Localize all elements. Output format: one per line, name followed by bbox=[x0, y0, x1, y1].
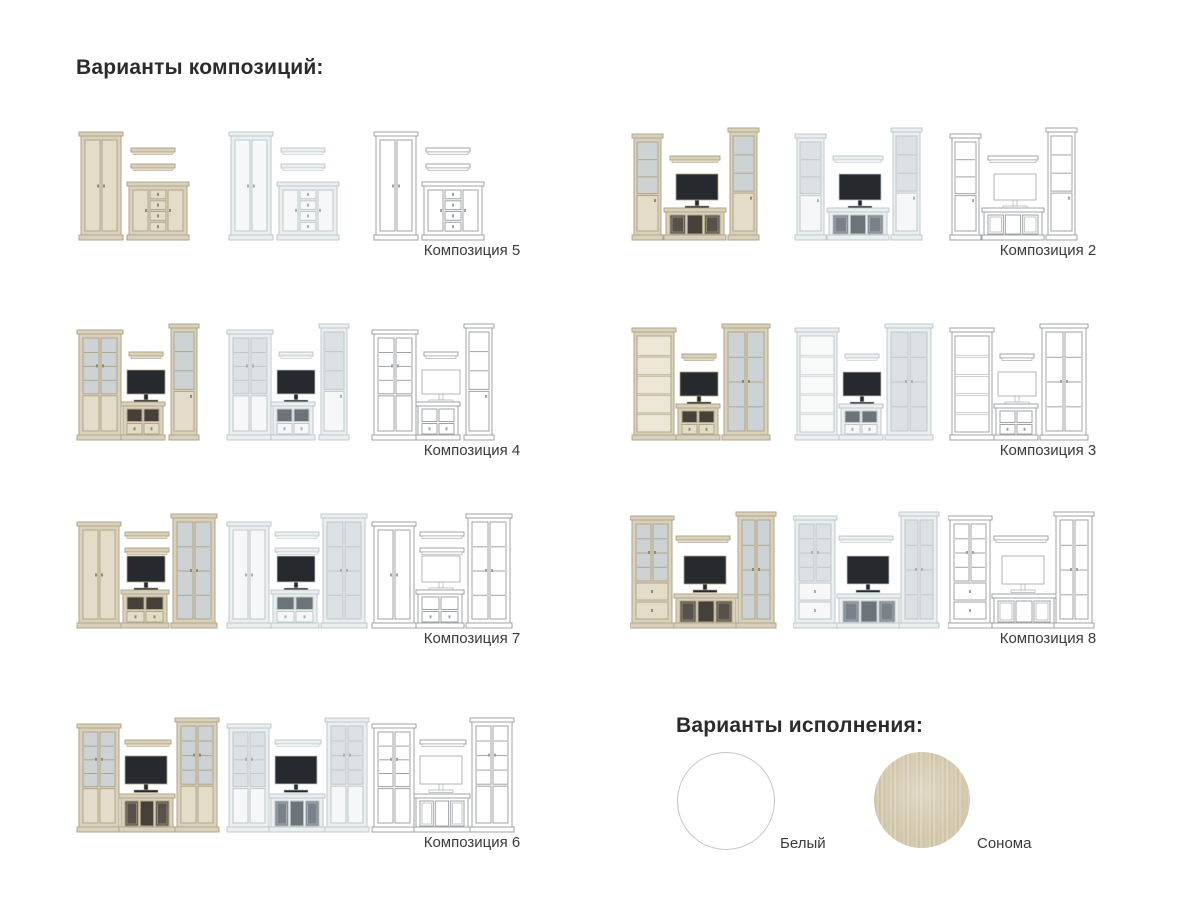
furniture-render-sonoma bbox=[630, 118, 778, 250]
furniture-render-sonoma bbox=[630, 318, 778, 450]
furniture-render-outline bbox=[948, 506, 1096, 638]
furniture-render-white bbox=[225, 506, 373, 638]
furniture-render-sonoma bbox=[75, 710, 223, 842]
composition-card: Композиция 5 bbox=[75, 118, 541, 278]
furniture-render-white bbox=[793, 118, 941, 250]
furniture-render-outline bbox=[370, 506, 518, 638]
furniture-render-sonoma bbox=[75, 318, 223, 450]
furniture-render-white bbox=[225, 118, 373, 250]
compositions-heading: Варианты композиций: bbox=[76, 56, 324, 80]
furniture-render-white bbox=[225, 318, 373, 450]
finish-swatch-sonoma bbox=[874, 752, 970, 848]
furniture-render-sonoma bbox=[630, 506, 778, 638]
composition-card: Композиция 4 bbox=[75, 318, 541, 478]
furniture-render-white bbox=[793, 506, 941, 638]
furniture-render-outline bbox=[370, 710, 518, 842]
composition-card: Композиция 2 bbox=[630, 118, 1096, 278]
composition-card: Композиция 6 bbox=[75, 710, 541, 870]
furniture-render-white bbox=[225, 710, 373, 842]
composition-label: Композиция 8 bbox=[973, 630, 1123, 647]
composition-label: Композиция 2 bbox=[973, 242, 1123, 259]
finish-label: Белый bbox=[780, 835, 826, 852]
furniture-render-sonoma bbox=[75, 506, 223, 638]
finishes-heading: Варианты исполнения: bbox=[676, 714, 923, 738]
composition-label: Композиция 5 bbox=[397, 242, 547, 259]
composition-label: Композиция 6 bbox=[397, 834, 547, 851]
composition-label: Композиция 4 bbox=[397, 442, 547, 459]
furniture-render-outline bbox=[370, 318, 518, 450]
finish-swatch-white bbox=[677, 752, 775, 850]
catalog-page: { "headings": { "compositions": "Вариант… bbox=[0, 0, 1200, 900]
composition-card: Композиция 7 bbox=[75, 506, 541, 666]
furniture-render-outline bbox=[370, 118, 518, 250]
composition-label: Композиция 7 bbox=[397, 630, 547, 647]
composition-label: Композиция 3 bbox=[973, 442, 1123, 459]
composition-card: Композиция 3 bbox=[630, 318, 1096, 478]
finish-label: Сонома bbox=[977, 835, 1031, 852]
furniture-render-sonoma bbox=[75, 118, 223, 250]
furniture-render-white bbox=[793, 318, 941, 450]
furniture-render-outline bbox=[948, 318, 1096, 450]
furniture-render-outline bbox=[948, 118, 1096, 250]
composition-card: Композиция 8 bbox=[630, 506, 1096, 666]
